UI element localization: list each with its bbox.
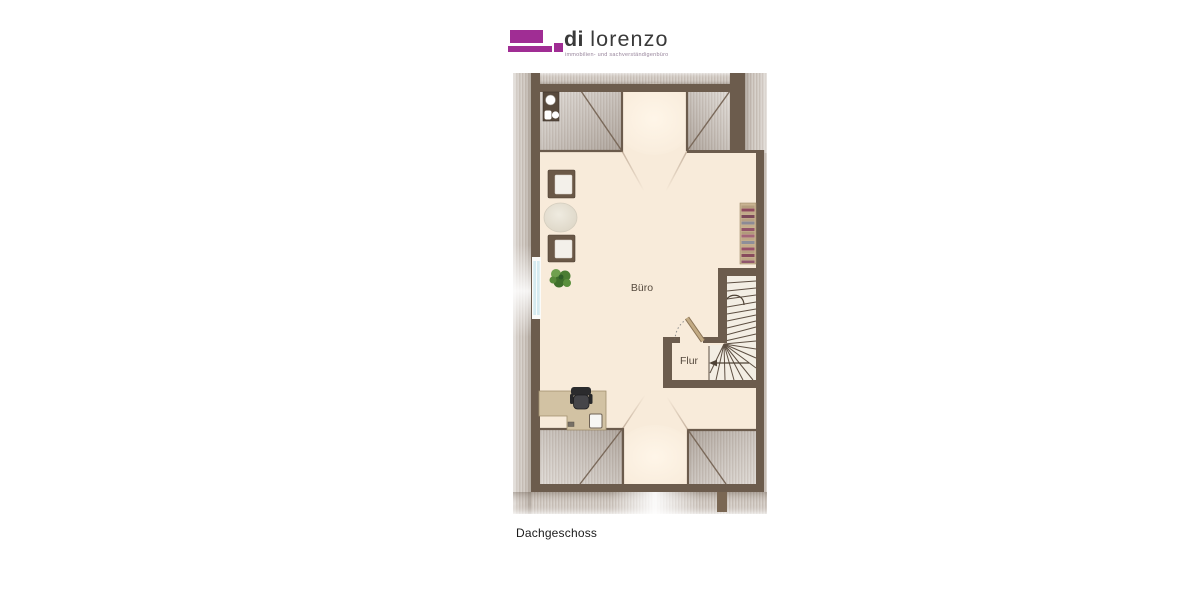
chimney-flue-icon xyxy=(546,95,556,105)
logo-word-lorenzo: lorenzo xyxy=(590,27,668,51)
armchair xyxy=(548,235,575,262)
plan-caption: Dachgeschoss xyxy=(516,526,597,540)
wall-stair-left xyxy=(718,276,727,343)
roof-slope-top-right xyxy=(687,91,730,151)
logo-wordmark: di lorenzo xyxy=(564,28,669,50)
wall-bottom xyxy=(531,484,764,492)
wall-flur-top xyxy=(703,337,727,343)
logo-square xyxy=(554,43,563,52)
page: { "logo": { "brand_primary": "di", "bran… xyxy=(0,0,1200,600)
sitting-area xyxy=(544,170,577,262)
dormer-glow-bottom xyxy=(615,425,695,489)
chimney-vent-icon xyxy=(545,111,552,120)
round-table xyxy=(544,203,577,232)
window xyxy=(532,257,541,319)
wall-step-line xyxy=(687,150,764,153)
room-label-buero: Büro xyxy=(631,282,653,294)
armchair xyxy=(548,170,575,198)
wall-right-upper xyxy=(730,73,745,153)
roof-slope-bottom-left xyxy=(540,428,623,484)
bookshelf xyxy=(740,203,756,264)
wall-top xyxy=(531,84,745,92)
printer xyxy=(590,414,603,428)
desk-phone xyxy=(568,422,574,427)
logo-rectangle-large xyxy=(510,30,543,43)
logo-bar xyxy=(508,46,552,52)
dormer-glow-top xyxy=(614,83,694,155)
chimney-flue-small-icon xyxy=(552,111,559,118)
logo-word-di: di xyxy=(564,27,584,51)
floor-plan: Büro Flur xyxy=(513,73,767,514)
wall-gable-mark xyxy=(717,492,727,512)
wall-stair-top xyxy=(718,268,763,276)
room-label-flur: Flur xyxy=(680,355,699,367)
chimney xyxy=(543,92,559,121)
logo-tagline: immobilien- und sachverständigenbüro xyxy=(565,52,668,58)
wall-right-lower xyxy=(756,150,764,492)
wall-flur-bottom xyxy=(663,380,764,388)
office-chair xyxy=(570,387,593,409)
roof-slope-bottom-right xyxy=(688,430,758,484)
company-logo: di lorenzo immobilien- und sachverständi… xyxy=(507,28,677,62)
